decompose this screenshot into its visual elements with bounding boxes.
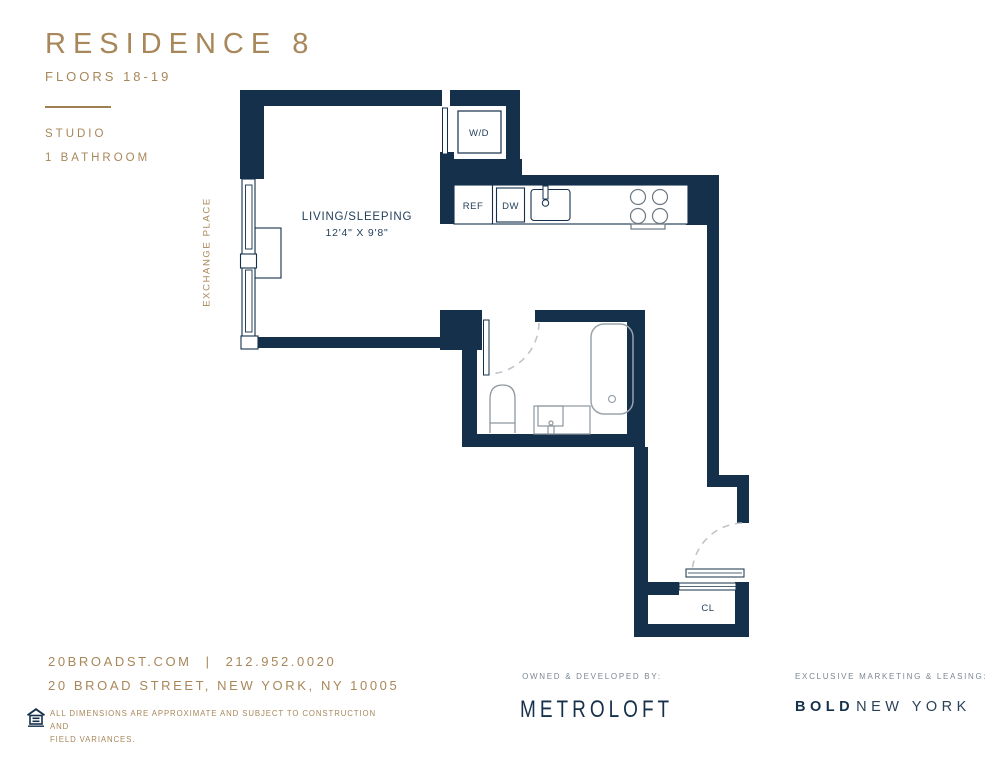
laundry-closet: W/D <box>443 108 502 154</box>
floor-plan-walls <box>240 90 749 637</box>
kitchen-sink <box>531 190 570 221</box>
window-mullion <box>241 254 257 268</box>
toilet <box>490 385 515 433</box>
bathroom-door-swing <box>489 323 539 374</box>
living-room-dimensions: 12'4" X 9'8" <box>325 227 388 239</box>
marketing-credit: EXCLUSIVE MARKETING & LEASING: BOLDNEW Y… <box>795 672 960 715</box>
disclaimer-line-1: ALL DIMENSIONS ARE APPROXIMATE AND SUBJE… <box>50 707 380 733</box>
equal-housing-icon <box>26 707 46 728</box>
marketing-label: EXCLUSIVE MARKETING & LEASING: <box>795 672 960 681</box>
bathtub <box>591 324 633 414</box>
street-label: EXCHANGE PLACE <box>202 197 213 307</box>
bold-new-york-logo: BOLDNEW YORK <box>795 699 960 715</box>
closet-label: CL <box>701 603 714 614</box>
bathroom-door <box>484 320 490 375</box>
contact-block: 20BROADST.COM|212.952.0020 20 BROAD STRE… <box>48 654 399 693</box>
living-room-label: LIVING/SLEEPING <box>302 211 412 223</box>
page-title: RESIDENCE 8 <box>45 28 315 61</box>
entry-door-swing <box>692 523 742 573</box>
gold-divider <box>45 106 111 108</box>
disclaimer-line-2: FIELD VARIANCES. <box>50 733 380 746</box>
developer-credit: OWNED & DEVELOPED BY: METROLOFT <box>520 672 664 719</box>
address: 20 BROAD STREET, NEW YORK, NY 10005 <box>48 678 399 693</box>
metroloft-logo: METROLOFT <box>520 697 664 725</box>
wall-end-cap <box>241 336 258 349</box>
bathroom-vanity <box>534 406 590 434</box>
dishwasher-label: DW <box>502 201 519 212</box>
entry <box>686 523 744 577</box>
stove-front <box>631 224 665 229</box>
floor-plan: W/D REF DW LIVING/SLEEPING 12'4" X 9'8" <box>238 88 754 640</box>
separator: | <box>206 654 212 669</box>
refrigerator-label: REF <box>463 201 484 212</box>
kitchen: REF DW <box>454 185 688 229</box>
closet: CL <box>679 583 736 614</box>
disclaimer: ALL DIMENSIONS ARE APPROXIMATE AND SUBJE… <box>50 707 380 746</box>
living-room: LIVING/SLEEPING 12'4" X 9'8" <box>302 211 412 239</box>
bold-logo-part: BOLD <box>795 699 854 715</box>
website: 20BROADST.COM <box>48 654 192 669</box>
bathroom <box>484 320 634 434</box>
sink-faucet <box>543 186 548 199</box>
newyork-logo-part: NEW YORK <box>856 699 971 715</box>
phone: 212.952.0020 <box>226 654 337 669</box>
developer-label: OWNED & DEVELOPED BY: <box>520 672 664 681</box>
washer-dryer-label: W/D <box>469 128 489 139</box>
laundry-door <box>443 108 448 154</box>
floors-subtitle: FLOORS 18-19 <box>45 69 315 84</box>
column-bump <box>255 228 281 278</box>
contact-line: 20BROADST.COM|212.952.0020 <box>48 654 399 669</box>
window-wall <box>241 179 282 349</box>
